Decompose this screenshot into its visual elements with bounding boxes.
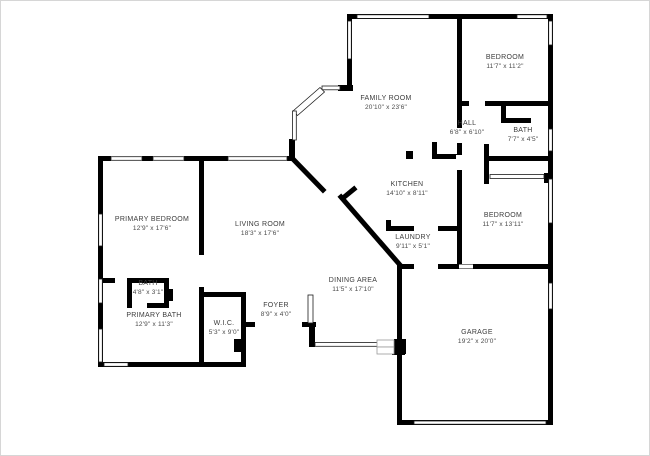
room-label-primary-bedroom: PRIMARY BEDROOM12'9" x 17'6" (115, 216, 189, 232)
door-opening (469, 101, 485, 106)
room-label-bath-right: BATH7'7" x 4'5" (508, 127, 539, 143)
room-name: FAMILY ROOM (360, 95, 411, 102)
window (549, 129, 553, 151)
room-dimensions: 18'3" x 17'6" (241, 230, 280, 237)
room-dimensions: 14'10" x 8'11" (386, 190, 428, 197)
room-dimensions: 11'5" x 17'10" (332, 286, 374, 293)
room-name: DINING AREA (329, 277, 377, 284)
room-label-dining-area: DINING AREA11'5" x 17'10" (329, 277, 377, 293)
floor-plan: FAMILY ROOM20'10" x 23'6"BEDROOM11'7" x … (1, 1, 650, 456)
room-dimensions: 20'10" x 23'6" (365, 104, 408, 111)
room-label-foyer: FOYER8'9" x 4'0" (261, 302, 292, 318)
room-label-living-room: LIVING ROOM18'3" x 17'6" (235, 221, 285, 237)
door-opening (456, 155, 463, 170)
room-name: LIVING ROOM (235, 221, 285, 228)
room-label-bedroom-top-right: BEDROOM11'7" x 11'2" (486, 54, 524, 70)
room-dimensions: 7'7" x 4'5" (508, 136, 539, 143)
front-door (308, 295, 313, 323)
wall-segment (142, 156, 153, 161)
wall-segment (127, 278, 132, 308)
room-label-bedroom-mid-right: BEDROOM11'7" x 13'11" (482, 212, 524, 228)
bay-window (293, 88, 325, 116)
closet-doors (490, 175, 544, 179)
room-label-laundry: LAUNDRY9'11" x 5'1" (395, 234, 430, 250)
wall-segment (241, 322, 255, 327)
wall-segment (241, 292, 246, 367)
room-name: BEDROOM (486, 54, 524, 61)
room-label-wic: W.I.C.5'3" x 9'0" (209, 320, 240, 336)
window (99, 214, 103, 246)
window (517, 15, 547, 19)
window (549, 21, 553, 45)
room-name: W.I.C. (214, 320, 235, 327)
room-name: HALL (458, 120, 477, 127)
window (228, 157, 287, 161)
wall-segment (98, 156, 111, 161)
window (549, 179, 553, 223)
wall-segment (438, 226, 457, 231)
wall-segment (147, 303, 169, 308)
wall-segment (386, 220, 391, 228)
room-dimensions: 19'2" x 20'0" (458, 338, 497, 345)
window (549, 283, 553, 309)
room-name: KITCHEN (391, 181, 424, 188)
room-dimensions: 11'7" x 11'2" (486, 63, 524, 70)
steps (377, 340, 394, 347)
room-dimensions: 6'8" x 6'10" (450, 129, 485, 136)
room-name: PRIMARY BATH (126, 312, 181, 319)
garage-entry-door-jamb (394, 339, 406, 354)
wall-segment (406, 151, 413, 159)
room-dimensions: 9'11" x 5'1" (396, 243, 430, 250)
window (357, 15, 429, 19)
window (99, 279, 103, 303)
steps (377, 347, 394, 354)
room-dimensions: 5'3" x 9'0" (209, 329, 240, 336)
angled-door-jamb (343, 189, 354, 198)
room-name: LAUNDRY (395, 234, 430, 241)
room-label-garage: GARAGE19'2" x 20'0" (458, 329, 497, 345)
room-dimensions: 12'9" x 17'6" (133, 225, 172, 232)
wall-segment (501, 101, 506, 123)
room-label-kitchen: KITCHEN14'10" x 8'11" (386, 181, 428, 197)
wall-segment (309, 322, 315, 347)
door-jamb (234, 339, 242, 352)
wall-segment (184, 156, 228, 161)
wall-segment (506, 118, 531, 123)
door-jamb (166, 289, 173, 301)
room-label-family-room: FAMILY ROOM20'10" x 23'6" (360, 95, 411, 111)
window (293, 111, 297, 140)
window (348, 21, 352, 59)
room-name: BATH (138, 280, 157, 287)
wall-segment (484, 156, 553, 161)
room-labels: FAMILY ROOM20'10" x 23'6"BEDROOM11'7" x … (115, 54, 539, 345)
room-dimensions: 11'7" x 13'11" (482, 221, 524, 228)
wall-segment (432, 142, 437, 156)
room-name: GARAGE (461, 329, 493, 336)
room-name: FOYER (263, 302, 289, 309)
window (104, 363, 128, 367)
wall-segment (199, 287, 204, 367)
room-label-hall: HALL6'8" x 6'10" (450, 120, 485, 136)
floor-plan-page: FAMILY ROOM20'10" x 23'6"BEDROOM11'7" x … (0, 0, 650, 456)
room-name: BEDROOM (484, 212, 522, 219)
window (322, 86, 340, 90)
door-opening (459, 265, 473, 269)
room-label-primary-bath: PRIMARY BATH12'9" x 11'3" (126, 312, 181, 328)
garage-door (414, 421, 546, 424)
window (99, 329, 103, 362)
door-opening (414, 264, 438, 269)
wall-segment (199, 292, 246, 297)
room-name: BATH (513, 127, 532, 134)
wall-segment (199, 158, 204, 255)
room-dimensions: 12'9" x 11'3" (135, 321, 173, 328)
room-name: PRIMARY BEDROOM (115, 216, 189, 223)
angled-wall (292, 158, 323, 190)
window (111, 157, 142, 161)
room-dimensions: 4'8" x 3'1" (133, 289, 164, 296)
window (153, 157, 184, 161)
wall-segment (484, 144, 489, 184)
room-dimensions: 8'9" x 4'0" (261, 311, 292, 318)
